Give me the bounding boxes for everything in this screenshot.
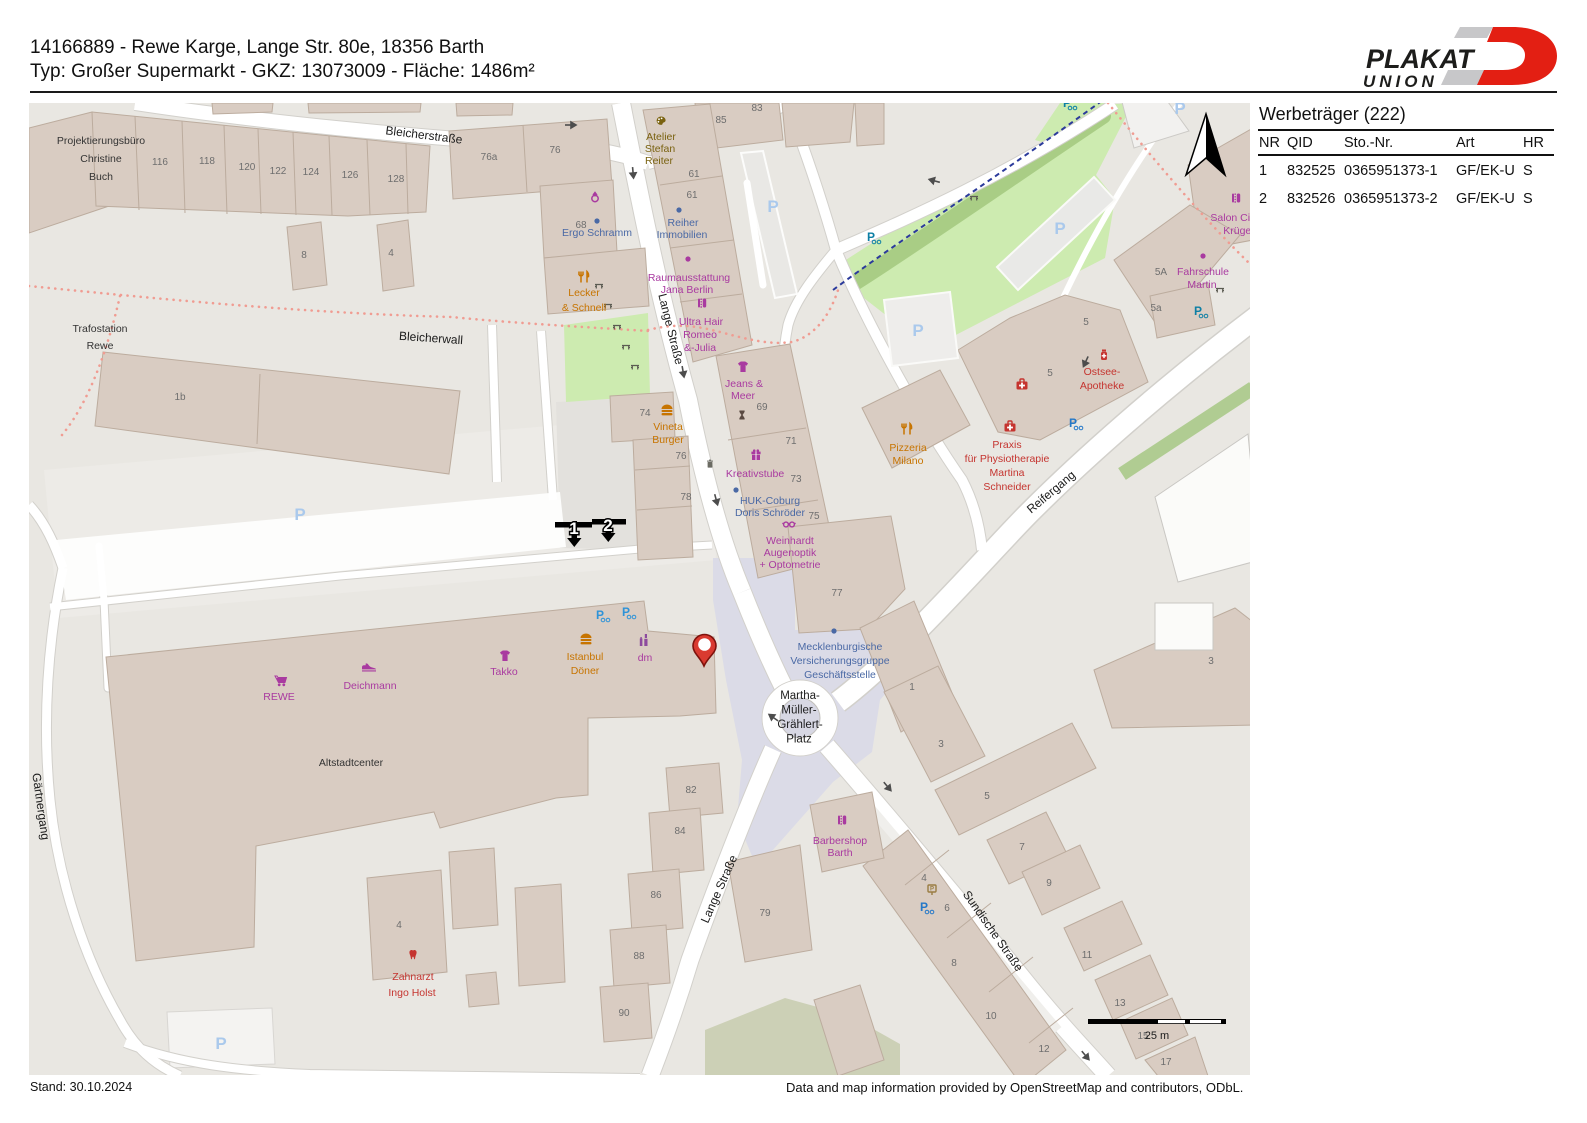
svg-text:Martha-: Martha- <box>780 690 820 702</box>
svg-text:Mecklenburgische: Mecklenburgische <box>798 641 883 653</box>
svg-text:Buch: Buch <box>89 171 113 183</box>
svg-text:13: 13 <box>1114 998 1126 1009</box>
svg-text:Stefan: Stefan <box>645 143 676 155</box>
svg-text:9: 9 <box>1046 878 1052 889</box>
svg-text:78: 78 <box>680 492 692 503</box>
svg-text:P: P <box>920 900 928 914</box>
svg-text:Reiher: Reiher <box>668 217 699 229</box>
svg-text:1: 1 <box>569 519 578 538</box>
svg-text:Doris Schröder: Doris Schröder <box>735 507 806 519</box>
svg-text:dm: dm <box>638 652 653 664</box>
svg-text:Vineta: Vineta <box>653 421 683 433</box>
svg-text:P: P <box>1054 219 1065 238</box>
svg-text:90: 90 <box>618 1008 630 1019</box>
svg-text:Praxis: Praxis <box>992 439 1021 451</box>
svg-text:5: 5 <box>1047 368 1053 379</box>
svg-text:Christine: Christine <box>80 153 122 165</box>
svg-text:Burger: Burger <box>652 434 684 446</box>
svg-text:Jeans &: Jeans & <box>725 378 763 390</box>
svg-text:P: P <box>596 608 604 622</box>
svg-text:Reiter: Reiter <box>645 155 674 167</box>
svg-text:Martin: Martin <box>1187 279 1216 291</box>
svg-text:P: P <box>622 605 630 619</box>
svg-text:Pizzeria: Pizzeria <box>889 442 927 454</box>
svg-text:Romeo: Romeo <box>683 329 717 341</box>
svg-text:Barbershop: Barbershop <box>813 835 867 847</box>
svg-text:Istanbul: Istanbul <box>567 651 604 663</box>
svg-text:10: 10 <box>985 1011 997 1022</box>
svg-text:für Physiotherapie: für Physiotherapie <box>965 453 1050 465</box>
svg-text:4: 4 <box>396 920 402 931</box>
svg-text:6: 6 <box>944 903 950 914</box>
svg-text:Grählert-: Grählert- <box>777 719 823 731</box>
svg-text:REWE: REWE <box>263 691 295 703</box>
svg-text:5a: 5a <box>1150 303 1162 314</box>
svg-text:UNION: UNION <box>1363 72 1438 91</box>
svg-text:5A: 5A <box>1155 267 1168 278</box>
svg-text:75: 75 <box>808 511 820 522</box>
svg-text:Krüger: Krüger <box>1223 225 1250 237</box>
svg-text:Ostsee-: Ostsee- <box>1084 366 1121 378</box>
svg-text:P: P <box>1194 304 1202 318</box>
svg-text:124: 124 <box>303 167 320 178</box>
svg-text:76a: 76a <box>481 152 498 163</box>
svg-text:Martina: Martina <box>989 467 1024 479</box>
svg-text:Zahnarzt: Zahnarzt <box>392 971 434 983</box>
svg-text:7: 7 <box>1019 842 1025 853</box>
svg-text:1b: 1b <box>174 392 186 403</box>
svg-text:Platz: Platz <box>786 734 812 746</box>
svg-text:128: 128 <box>388 174 405 185</box>
svg-text:Immobilien: Immobilien <box>657 229 708 241</box>
svg-text:3: 3 <box>1208 656 1214 667</box>
svg-text:116: 116 <box>152 157 168 168</box>
svg-text:5: 5 <box>984 791 990 802</box>
svg-text:Deichmann: Deichmann <box>343 680 396 692</box>
svg-text:2: 2 <box>603 516 612 535</box>
svg-text:3: 3 <box>938 739 944 750</box>
svg-text:73: 73 <box>790 474 802 485</box>
svg-text:Trafostation: Trafostation <box>72 323 127 335</box>
svg-text:118: 118 <box>199 156 215 167</box>
svg-text:69: 69 <box>756 402 768 413</box>
svg-text:& Schnell: & Schnell <box>562 302 606 314</box>
svg-text:83: 83 <box>751 103 763 114</box>
svg-text:74: 74 <box>639 408 651 419</box>
svg-text:71: 71 <box>785 436 797 447</box>
svg-text:8: 8 <box>301 250 307 261</box>
svg-text:84: 84 <box>674 826 686 837</box>
svg-text:Raumausstattung: Raumausstattung <box>648 272 730 284</box>
svg-text:126: 126 <box>342 170 359 181</box>
svg-text:Takko: Takko <box>490 666 518 678</box>
svg-text:82: 82 <box>685 785 697 796</box>
svg-text:Altstadtcenter: Altstadtcenter <box>319 757 384 769</box>
svg-text:86: 86 <box>650 890 662 901</box>
svg-text:77: 77 <box>831 588 843 599</box>
svg-text:Weinhardt: Weinhardt <box>766 535 814 547</box>
svg-text:Meer: Meer <box>731 390 755 402</box>
svg-text:Lecker: Lecker <box>568 287 600 299</box>
svg-text:Salon Cir: Salon Cir <box>1210 212 1250 224</box>
svg-text:Milano: Milano <box>893 455 924 467</box>
svg-text:1: 1 <box>909 682 915 693</box>
svg-text:8: 8 <box>951 958 957 969</box>
svg-text:Geschäftsstelle: Geschäftsstelle <box>804 669 876 681</box>
svg-text:85: 85 <box>715 115 727 126</box>
svg-text:120: 120 <box>239 162 256 173</box>
svg-text:+ Optometrie: + Optometrie <box>760 559 821 571</box>
svg-text:Projektierungsbüro: Projektierungsbüro <box>57 135 145 147</box>
svg-text:79: 79 <box>759 908 771 919</box>
svg-text:P: P <box>1174 103 1185 118</box>
svg-text:P: P <box>1069 416 1077 430</box>
svg-text:88: 88 <box>633 951 645 962</box>
svg-text:P: P <box>867 230 875 244</box>
svg-text:Versicherungsgruppe: Versicherungsgruppe <box>790 655 889 667</box>
svg-text:PLAKAT: PLAKAT <box>1366 44 1476 74</box>
svg-text:17: 17 <box>1160 1057 1172 1068</box>
svg-text:Augenoptik: Augenoptik <box>764 547 817 559</box>
svg-text:76: 76 <box>549 145 561 156</box>
svg-text:Ingo Holst: Ingo Holst <box>388 987 435 999</box>
svg-text:P: P <box>767 197 778 216</box>
svg-text:Schneider: Schneider <box>983 481 1031 493</box>
svg-text:Jana Berlin: Jana Berlin <box>661 284 714 296</box>
svg-text:11: 11 <box>1082 950 1093 961</box>
svg-text:Rewe: Rewe <box>87 340 114 352</box>
svg-text:&-Julia: &-Julia <box>684 342 716 354</box>
svg-text:P: P <box>215 1034 226 1053</box>
svg-text:12: 12 <box>1038 1044 1050 1055</box>
svg-text:Kreativstube: Kreativstube <box>726 468 785 480</box>
svg-text:P: P <box>912 321 923 340</box>
svg-text:4: 4 <box>388 248 394 259</box>
svg-text:Ultra Hair: Ultra Hair <box>679 316 724 328</box>
svg-text:76: 76 <box>675 451 687 462</box>
svg-text:61: 61 <box>686 190 698 201</box>
svg-text:P: P <box>294 505 305 524</box>
svg-text:Atelier: Atelier <box>646 131 676 143</box>
svg-text:Apotheke: Apotheke <box>1080 380 1125 392</box>
svg-text:HUK-Coburg: HUK-Coburg <box>740 495 800 507</box>
svg-text:Fahrschule: Fahrschule <box>1177 266 1229 278</box>
svg-text:25 m: 25 m <box>1145 1030 1169 1042</box>
svg-text:4: 4 <box>921 873 927 884</box>
svg-text:Müller-: Müller- <box>781 705 816 717</box>
svg-text:Barth: Barth <box>827 847 852 859</box>
svg-text:Ergo Schramm: Ergo Schramm <box>562 227 632 239</box>
svg-text:122: 122 <box>270 166 287 177</box>
svg-text:61: 61 <box>688 169 700 180</box>
svg-text:Döner: Döner <box>571 665 600 677</box>
svg-text:5: 5 <box>1083 317 1089 328</box>
